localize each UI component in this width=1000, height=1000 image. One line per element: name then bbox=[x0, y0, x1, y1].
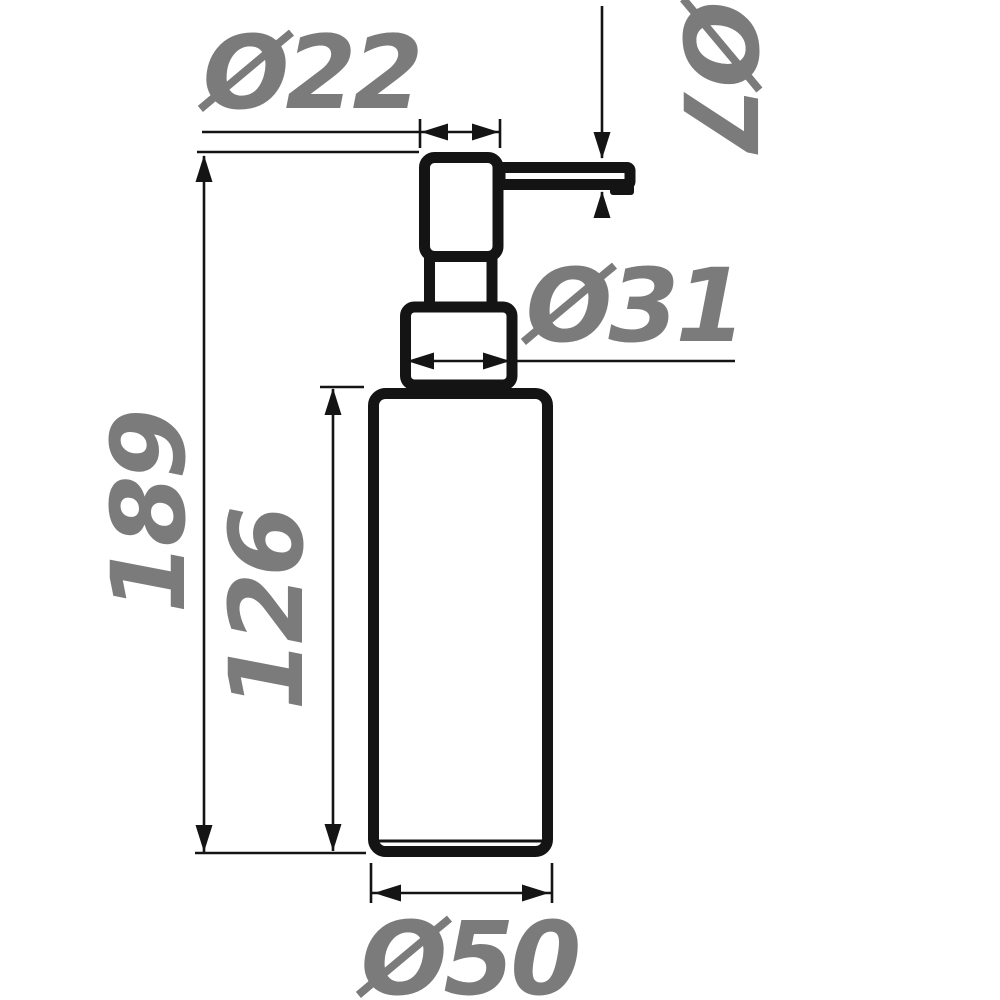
pump-head-outline bbox=[425, 158, 499, 257]
arrow-spout-top bbox=[594, 132, 611, 159]
label-head-width: Ø22 bbox=[203, 23, 420, 125]
label-total-height: 189 bbox=[99, 413, 201, 614]
arrow-head-width-left bbox=[421, 124, 448, 141]
bottle-outline bbox=[374, 394, 548, 852]
label-spout-diameter: Ø7 bbox=[667, 1, 769, 151]
arrow-head-width-right bbox=[472, 124, 499, 141]
technical-drawing-canvas: Ø22 Ø7 Ø31 189 126 Ø50 bbox=[0, 0, 1000, 1000]
arrow-total-height-top bbox=[196, 155, 213, 182]
arrow-spout-bottom bbox=[594, 191, 611, 218]
label-body-diameter: Ø50 bbox=[361, 909, 578, 1000]
label-collar-width: Ø31 bbox=[526, 256, 743, 358]
arrow-total-height-bottom bbox=[196, 825, 213, 852]
arrow-body-diameter-right bbox=[522, 885, 549, 902]
spout-tip bbox=[610, 181, 634, 195]
arrow-body-height-top bbox=[325, 388, 342, 415]
pump-neck-outline bbox=[430, 258, 493, 304]
collar-outline bbox=[406, 307, 513, 385]
label-body-height: 126 bbox=[217, 510, 319, 711]
spout-outline bbox=[500, 168, 630, 185]
arrow-body-diameter-left bbox=[374, 885, 401, 902]
arrow-body-height-bottom bbox=[325, 824, 342, 851]
